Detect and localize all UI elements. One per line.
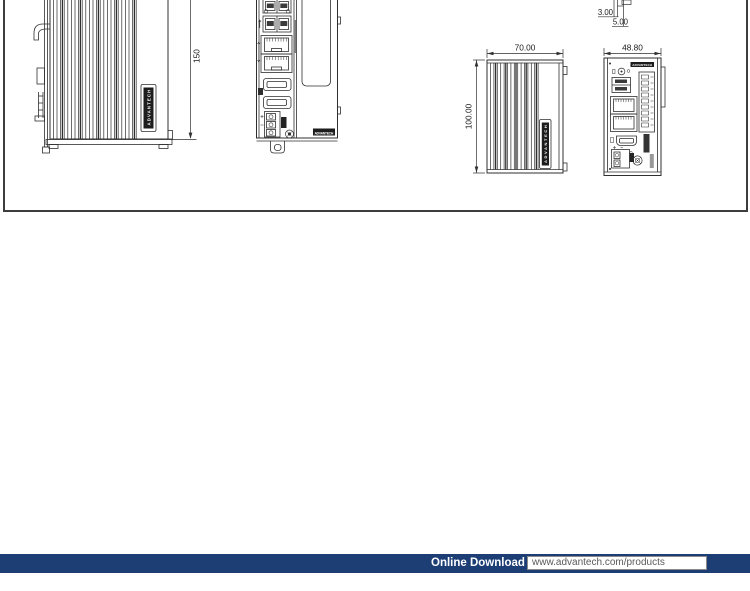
download-url-box[interactable]: www.advantech.com/products <box>527 556 707 570</box>
dim-label-detail-3: 3.00 <box>598 8 614 17</box>
dim-height-150-lines <box>171 0 197 140</box>
advantech-logo-device4: ADVANTECH <box>632 63 652 67</box>
footer-bar: Online Download www.advantech.com/produc… <box>0 554 750 573</box>
dim-label-width-48: 48.80 <box>622 43 643 53</box>
dim-label-detail-5: 5.00 <box>613 18 629 27</box>
datasheet-page: ADVANTECH 150 <box>0 0 750 591</box>
advantech-logo-device2: ADVANTECH <box>315 131 334 135</box>
device-side-view-fins <box>487 60 567 173</box>
device-front-view-io <box>257 0 341 153</box>
dim-label-height-150: 150 <box>192 49 202 63</box>
device-front-view-compact <box>604 58 665 176</box>
download-url-text: www.advantech.com/products <box>528 557 706 569</box>
dim-height-100-lines <box>473 60 485 173</box>
advantech-logo-device3: ADVANTECH <box>543 125 548 163</box>
dim-label-height-100: 100.00 <box>464 103 474 129</box>
advantech-logo-device1: ADVANTECH <box>146 90 151 126</box>
dimension-drawings: ADVANTECH 150 <box>0 0 750 215</box>
online-download-label: Online Download <box>431 554 525 573</box>
device-side-view-din-rail <box>34 0 173 153</box>
dim-label-width-70: 70.00 <box>515 43 536 53</box>
